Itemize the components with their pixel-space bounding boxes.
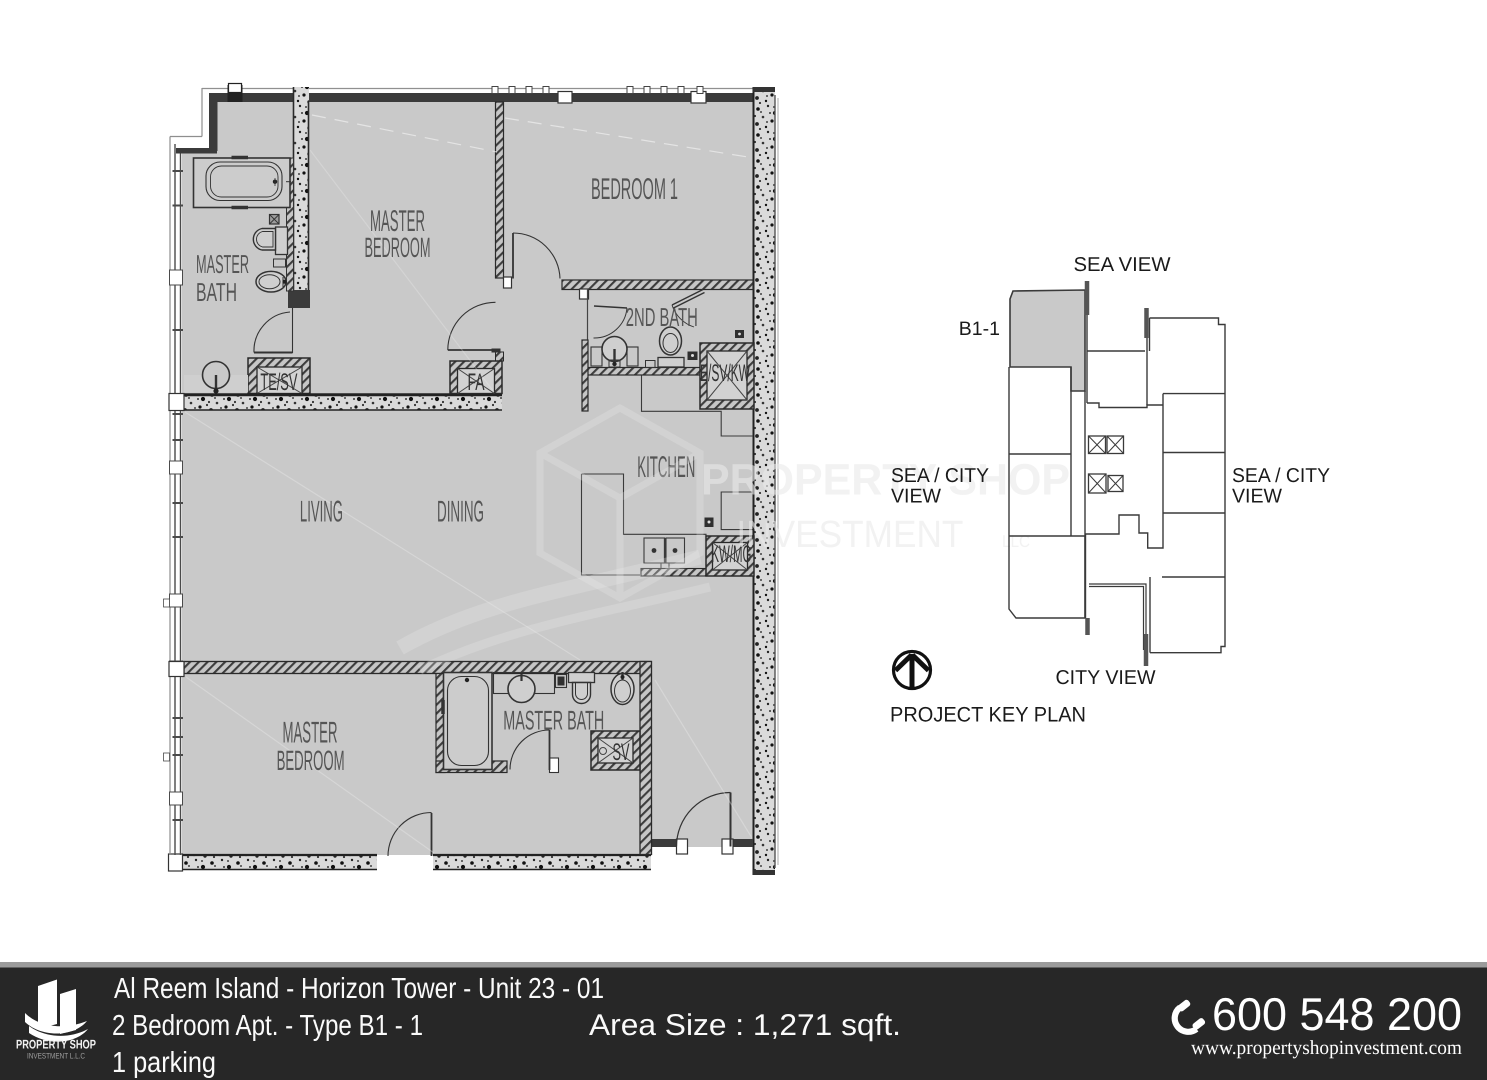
svg-text:E/SV/KW: E/SV/KW [700,360,750,387]
svg-text:PROJECT KEY PLAN: PROJECT KEY PLAN [890,704,1086,727]
svg-text:CITY VIEW: CITY VIEW [1056,667,1156,689]
svg-text:BEDROOM: BEDROOM [365,232,431,263]
svg-text:SEA VIEW: SEA VIEW [1074,254,1171,276]
svg-text:www.propertyshopinvestment.com: www.propertyshopinvestment.com [1191,1037,1462,1059]
svg-text:VIEW: VIEW [1232,486,1282,508]
svg-text:BATH: BATH [196,277,237,307]
svg-text:2 Bedroom Apt. - Type B1 - 1: 2 Bedroom Apt. - Type B1 - 1 [112,1010,423,1042]
svg-text:DINING: DINING [437,496,484,529]
svg-text:PROPERTY SHOP: PROPERTY SHOP [701,456,1070,505]
svg-text:Area Size : 1,271 sqft.: Area Size : 1,271 sqft. [589,1009,901,1042]
svg-text:SV: SV [613,739,630,766]
svg-text:BEDROOM: BEDROOM [277,745,345,776]
svg-text:Al Reem Island - Horizon Tower: Al Reem Island - Horizon Tower - Unit 23… [114,973,604,1005]
svg-text:B1-1: B1-1 [959,318,1000,340]
svg-text:SEA / CITY: SEA / CITY [891,465,989,487]
svg-text:2ND BATH: 2ND BATH [626,302,698,332]
svg-text:BEDROOM 1: BEDROOM 1 [591,173,678,206]
svg-text:INVESTMENT: INVESTMENT [736,514,963,556]
svg-text:LIVING: LIVING [300,496,343,529]
svg-text:MASTER: MASTER [196,249,249,279]
svg-text:KITCHEN: KITCHEN [637,451,695,484]
svg-text:VIEW: VIEW [891,486,941,508]
svg-text:MASTER BATH: MASTER BATH [503,706,604,736]
svg-text:LLC: LLC [1002,532,1030,551]
svg-text:PROPERTY SHOP: PROPERTY SHOP [16,1038,96,1052]
svg-text:INVESTMENT L.L.C: INVESTMENT L.L.C [27,1052,85,1061]
svg-text:600 548 200: 600 548 200 [1212,988,1462,1040]
svg-text:FA: FA [468,369,485,396]
svg-text:1 parking: 1 parking [112,1047,216,1079]
svg-text:SEA / CITY: SEA / CITY [1232,465,1330,487]
svg-text:TE/SV: TE/SV [260,369,297,396]
